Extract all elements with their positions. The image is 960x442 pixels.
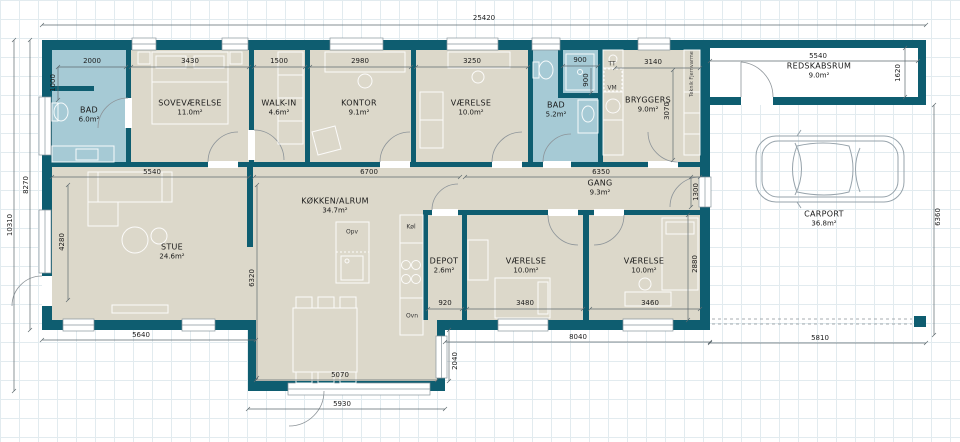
room-area: 9.0m² bbox=[787, 72, 851, 81]
room-area: 5.2m² bbox=[546, 111, 567, 120]
dim-kontor-width: 2980 bbox=[351, 57, 369, 65]
room-area: 10.0m² bbox=[451, 109, 492, 118]
dim-bryggers-width: 3140 bbox=[644, 58, 662, 66]
room-name: BAD bbox=[79, 106, 100, 116]
room-area: 4.6m² bbox=[261, 109, 296, 118]
dim-left-inner: 8270 bbox=[22, 176, 30, 194]
dim-kokken-depth: 6320 bbox=[248, 269, 256, 287]
room-area: 10.0m² bbox=[506, 267, 547, 276]
room-name: KONTOR bbox=[341, 99, 377, 109]
dim-stue-top-width: 5540 bbox=[143, 168, 161, 176]
dim-vaerelse-depth: 2880 bbox=[691, 255, 699, 273]
dim-vaerelse-bl-width: 3480 bbox=[516, 299, 534, 307]
room-label-redskabsrum: REDSKABSRUM9.0m² bbox=[787, 62, 851, 81]
room-area: 10.0m² bbox=[624, 267, 665, 276]
carport-boundary-dashed bbox=[712, 319, 912, 324]
dim-carport-depth: 6360 bbox=[934, 208, 942, 226]
room-area: 11.0m² bbox=[158, 109, 222, 118]
room-area: 9.1m² bbox=[341, 109, 377, 118]
room-label-bad-2: BAD5.2m² bbox=[546, 101, 567, 120]
room-name: SOVEVÆRELSE bbox=[158, 99, 222, 109]
dim-stue-depth: 4280 bbox=[58, 233, 66, 251]
room-label-bad-1: BAD6.0m² bbox=[79, 106, 100, 125]
dim-redskabsrum-depth: 1620 bbox=[894, 64, 902, 82]
room-area: 2.6m² bbox=[430, 267, 459, 276]
room-label-walkin: WALK-IN4.6m² bbox=[261, 99, 296, 118]
car-icon bbox=[756, 130, 904, 208]
room-label-gang: GANG9.3m² bbox=[587, 179, 612, 198]
dim-bottom-right-width: 8040 bbox=[569, 333, 587, 341]
dim-walkin-width: 1500 bbox=[270, 57, 288, 65]
dim-total-width: 25420 bbox=[473, 14, 495, 22]
label-dishwasher-opv: Opv bbox=[346, 229, 358, 236]
dim-depot-width: 920 bbox=[438, 299, 451, 307]
room-area: 34.7m² bbox=[301, 207, 369, 216]
room-name: STUE bbox=[159, 243, 184, 253]
room-label-vaerelse-top: VÆRELSE10.0m² bbox=[451, 99, 492, 118]
room-area: 6.0m² bbox=[79, 116, 100, 125]
dim-dining-width: 5070 bbox=[331, 371, 349, 379]
dim-redskabsrum-width: 5540 bbox=[809, 52, 827, 60]
dim-vaerelse-top-width: 3250 bbox=[463, 57, 481, 65]
label-fridge-koel: Køl bbox=[406, 224, 415, 231]
room-name: BAD bbox=[546, 101, 567, 111]
room-label-vaerelse-bl: VÆRELSE10.0m² bbox=[506, 257, 547, 276]
dim-extension-bottom-width: 5930 bbox=[333, 400, 351, 408]
dim-bryggers-depth: 3070 bbox=[663, 102, 671, 120]
dim-stue-bottom-width: 5640 bbox=[132, 331, 150, 339]
room-name: VÆRELSE bbox=[451, 99, 492, 109]
floor-plan: BAD6.0m² SOVEVÆRELSE11.0m² WALK-IN4.6m² … bbox=[0, 0, 960, 442]
room-label-stue: STUE24.6m² bbox=[159, 243, 184, 262]
room-area: 36.8m² bbox=[804, 220, 844, 229]
room-name: VÆRELSE bbox=[506, 257, 547, 267]
room-label-vaerelse-br: VÆRELSE10.0m² bbox=[624, 257, 665, 276]
room-area: 24.6m² bbox=[159, 253, 184, 262]
label-oven-ovn: Ovn bbox=[406, 313, 418, 320]
room-label-carport: CARPORT36.8m² bbox=[804, 210, 844, 229]
dim-gang-width: 6350 bbox=[592, 168, 610, 176]
room-label-depot: DEPOT2.6m² bbox=[430, 257, 459, 276]
dim-left-total: 10310 bbox=[6, 214, 14, 236]
room-area: 9.3m² bbox=[587, 189, 612, 198]
dim-bad1-depth: 1000 bbox=[49, 74, 57, 92]
room-label-sovevaerelse: SOVEVÆRELSE11.0m² bbox=[158, 99, 222, 118]
room-name: WALK-IN bbox=[261, 99, 296, 109]
room-label-kokken-alrum: KØKKEN/ALRUM34.7m² bbox=[301, 197, 369, 216]
room-name: VÆRELSE bbox=[624, 257, 665, 267]
room-name: DEPOT bbox=[430, 257, 459, 267]
dim-vaerelse-br-width: 3460 bbox=[641, 299, 659, 307]
dim-carport-width: 5810 bbox=[811, 334, 829, 342]
dim-kokken-top-width: 6700 bbox=[360, 168, 378, 176]
label-teknik-fjernvarme: Teknik Fjernvarme bbox=[689, 51, 695, 97]
room-name: GANG bbox=[587, 179, 612, 189]
dim-bad2-niche-depth: 900 bbox=[582, 73, 590, 86]
label-washer-vm: VM bbox=[607, 85, 616, 92]
room-label-kontor: KONTOR9.1m² bbox=[341, 99, 377, 118]
room-name: REDSKABSRUM bbox=[787, 62, 851, 72]
room-name: KØKKEN/ALRUM bbox=[301, 197, 369, 207]
label-dryer-tt: TT bbox=[608, 61, 615, 68]
dim-gang-door: 1300 bbox=[692, 183, 700, 201]
dim-extension-depth: 2040 bbox=[451, 352, 459, 370]
dim-bad1-width: 2000 bbox=[83, 57, 101, 65]
room-name: CARPORT bbox=[804, 210, 844, 220]
dim-bad2-niche-width: 900 bbox=[573, 56, 586, 64]
dim-sovevaerelse-width: 3430 bbox=[181, 57, 199, 65]
